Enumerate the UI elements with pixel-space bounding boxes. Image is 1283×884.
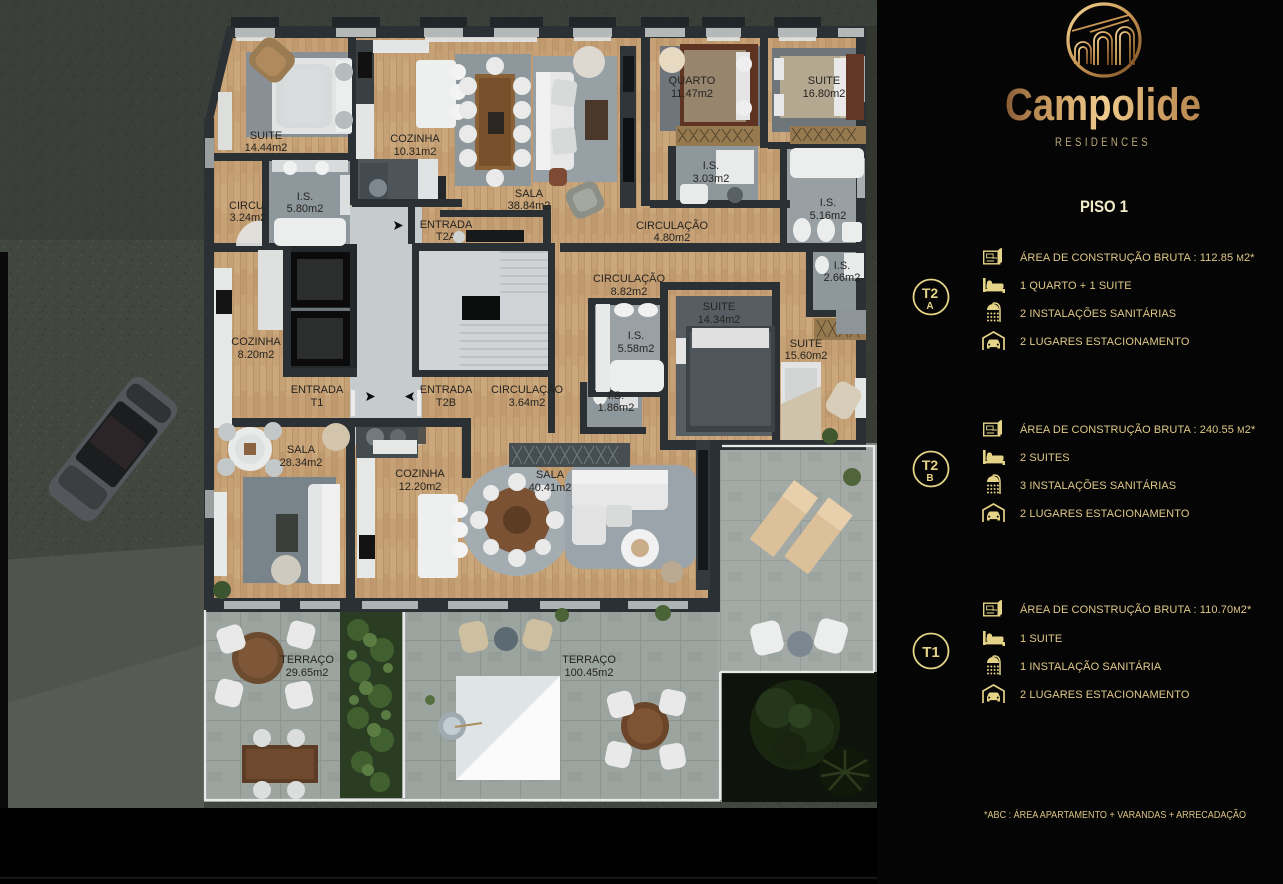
svg-text:14.34m2: 14.34m2	[698, 314, 741, 326]
svg-text:1 INSTALAÇÃO SANITÁRIA: 1 INSTALAÇÃO SANITÁRIA	[1020, 660, 1162, 673]
svg-text:ENTRADA: ENTRADA	[420, 384, 473, 396]
svg-text:ENTRADA: ENTRADA	[291, 384, 344, 396]
svg-text:29.65m2: 29.65m2	[286, 667, 329, 679]
svg-text:3.64m2: 3.64m2	[509, 397, 546, 409]
svg-text:28.34m2: 28.34m2	[280, 457, 323, 469]
svg-text:5.16m2: 5.16m2	[810, 210, 847, 222]
svg-text:ÁREA DE CONSTRUÇÃO BRUTA : 11: ÁREA DE CONSTRUÇÃO BRUTA : 112.85 M2*	[1020, 251, 1255, 264]
svg-text:40.41m2: 40.41m2	[529, 482, 572, 494]
svg-text:I.S.: I.S.	[628, 330, 645, 342]
svg-text:3.03m2: 3.03m2	[693, 173, 730, 185]
svg-text:38.84m2: 38.84m2	[508, 200, 551, 212]
svg-text:2.66m2: 2.66m2	[824, 272, 861, 284]
svg-text:2 LUGARES ESTACIONAMENTO: 2 LUGARES ESTACIONAMENTO	[1020, 689, 1190, 701]
svg-text:3 INSTALAÇÕES SANITÁRIAS: 3 INSTALAÇÕES SANITÁRIAS	[1020, 479, 1176, 492]
svg-text:11.47m2: 11.47m2	[671, 88, 713, 100]
svg-text:SALA: SALA	[287, 444, 316, 456]
svg-text:ÁREA DE CONSTRUÇÃO BRUTA : 24: ÁREA DE CONSTRUÇÃO BRUTA : 240.55 M2*	[1020, 423, 1256, 436]
svg-text:5.58m2: 5.58m2	[618, 343, 655, 355]
svg-text:SALA: SALA	[515, 188, 544, 200]
svg-text:3.24m2: 3.24m2	[230, 212, 267, 224]
svg-text:T1: T1	[311, 397, 324, 409]
svg-text:100.45m2: 100.45m2	[565, 667, 614, 679]
svg-text:I.S.: I.S.	[297, 191, 314, 203]
svg-text:8.20m2: 8.20m2	[238, 349, 275, 361]
svg-text:1.86m2: 1.86m2	[598, 402, 635, 414]
svg-text:1 SUITE: 1 SUITE	[1020, 633, 1062, 645]
svg-text:12.20m2: 12.20m2	[399, 481, 442, 493]
svg-text:T2: T2	[922, 285, 939, 301]
svg-text:ENTRADA: ENTRADA	[420, 219, 473, 231]
svg-text:SUITE: SUITE	[790, 338, 822, 350]
svg-text:SUITE: SUITE	[703, 301, 735, 313]
svg-text:14.44m2: 14.44m2	[245, 142, 288, 154]
svg-text:4.80m2: 4.80m2	[654, 232, 691, 244]
svg-text:CIRCU.: CIRCU.	[229, 200, 267, 212]
svg-text:T1: T1	[922, 644, 940, 661]
svg-text:2 LUGARES ESTACIONAMENTO: 2 LUGARES ESTACIONAMENTO	[1020, 336, 1190, 348]
svg-text:2 LUGARES ESTACIONAMENTO: 2 LUGARES ESTACIONAMENTO	[1020, 508, 1190, 520]
svg-text:T2B: T2B	[436, 397, 456, 409]
svg-text:*ABC : ÁREA APARTAMENTO + VAR: *ABC : ÁREA APARTAMENTO + VARANDAS + ARR…	[984, 808, 1246, 821]
svg-text:8.82m2: 8.82m2	[611, 286, 648, 298]
svg-text:SUITE: SUITE	[250, 130, 282, 142]
svg-text:10.31m2: 10.31m2	[394, 146, 437, 158]
svg-text:16.80m2: 16.80m2	[803, 88, 846, 100]
svg-text:SUITE: SUITE	[808, 75, 840, 87]
svg-text:A: A	[926, 301, 933, 312]
svg-text:COZINHA: COZINHA	[395, 468, 445, 480]
svg-text:B: B	[926, 473, 933, 484]
svg-text:I.S.: I.S.	[703, 160, 720, 172]
svg-text:I.S.: I.S.	[834, 260, 851, 272]
svg-text:CIRCULAÇÃO: CIRCULAÇÃO	[636, 219, 709, 232]
svg-text:1 QUARTO + 1 SUITE: 1 QUARTO + 1 SUITE	[1020, 280, 1132, 292]
svg-text:QUARTO: QUARTO	[669, 75, 716, 87]
svg-text:Campolide: Campolide	[1005, 79, 1201, 130]
svg-text:I.S.: I.S.	[820, 197, 837, 209]
svg-text:COZINHA: COZINHA	[390, 133, 440, 145]
svg-text:TERRAÇO: TERRAÇO	[280, 654, 334, 666]
svg-text:5.80m2: 5.80m2	[287, 203, 324, 215]
svg-text:PISO 1: PISO 1	[1080, 198, 1128, 216]
svg-text:CIRCULAÇÃO: CIRCULAÇÃO	[491, 383, 564, 396]
svg-text:ÁREA DE CONSTRUÇÃO BRUTA : 11: ÁREA DE CONSTRUÇÃO BRUTA : 110.70M2*	[1020, 603, 1252, 616]
svg-text:2 SUITES: 2 SUITES	[1020, 452, 1070, 464]
svg-text:RESIDENCES: RESIDENCES	[1055, 137, 1151, 149]
svg-text:I.S.: I.S.	[608, 390, 625, 402]
svg-text:2 INSTALAÇÕES SANITÁRIAS: 2 INSTALAÇÕES SANITÁRIAS	[1020, 307, 1176, 320]
svg-text:T2: T2	[922, 457, 939, 473]
svg-text:15.60m2: 15.60m2	[785, 350, 828, 362]
svg-text:SALA: SALA	[536, 469, 565, 481]
svg-text:COZINHA: COZINHA	[231, 336, 281, 348]
svg-text:TERRAÇO: TERRAÇO	[562, 654, 616, 666]
svg-text:CIRCULAÇÃO: CIRCULAÇÃO	[593, 272, 666, 285]
